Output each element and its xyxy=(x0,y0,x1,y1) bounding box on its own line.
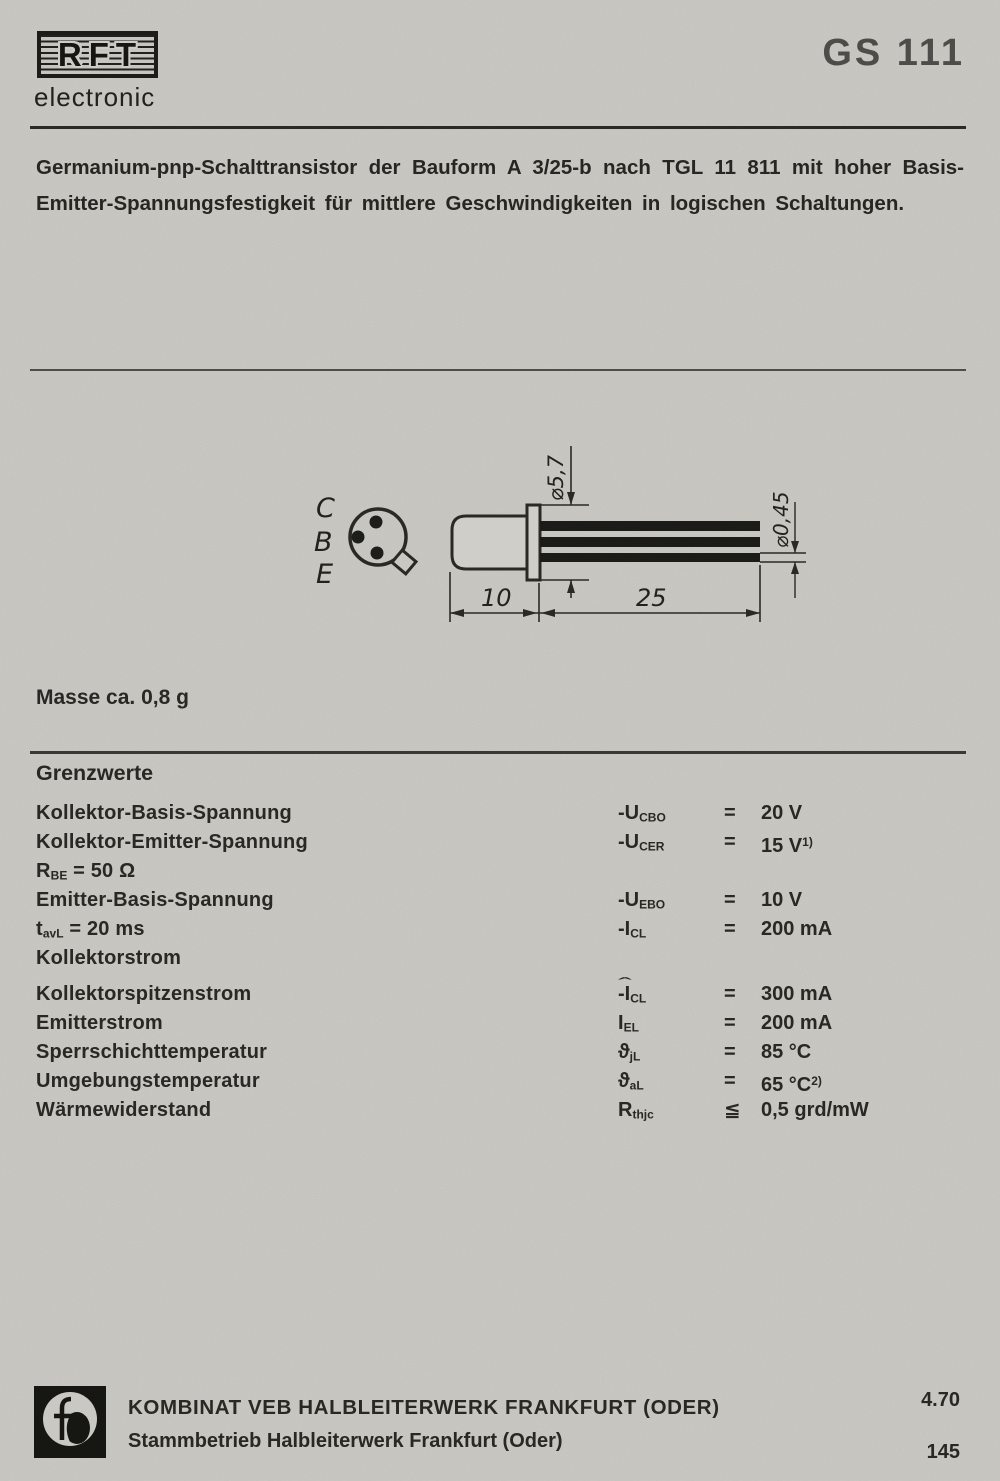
limit-relation: = xyxy=(724,1009,761,1038)
lead-bar-bottom2 xyxy=(549,553,760,562)
limit-name: RBE = 50 Ω xyxy=(36,857,618,886)
limit-relation xyxy=(724,944,761,973)
description-line-2: Emitter-Spannungsfestigkeit für mittlere… xyxy=(36,186,964,222)
transistor-flange xyxy=(527,505,540,580)
limit-relation xyxy=(724,857,761,886)
transistor-outline-drawing: C B E ⌀5,7 ⌀0,45 10 25 xyxy=(292,430,818,630)
limit-relation: = xyxy=(724,1067,761,1096)
limit-row: Kollektorspitzenstromˆ-ICL=300 mA xyxy=(36,980,966,1009)
limit-row: tavL = 20 ms-ICL=200 mA xyxy=(36,915,966,944)
limit-row: RBE = 50 Ω xyxy=(36,857,966,886)
limit-symbol: Rthjc xyxy=(618,1096,724,1125)
lead-bar-middle xyxy=(540,537,760,547)
pin-label-b: B xyxy=(314,527,333,558)
lead-bar-top xyxy=(540,521,760,531)
limit-relation: = xyxy=(724,1038,761,1067)
paper-texture xyxy=(0,0,1000,1481)
limit-value: 200 mA xyxy=(761,1009,966,1038)
limit-symbol: -ICL xyxy=(618,915,724,944)
limit-value: 85 °C xyxy=(761,1038,966,1067)
dim-lead-diameter-label: ⌀0,45 xyxy=(769,491,793,548)
pinout-index-tab xyxy=(392,550,416,574)
section-rule-limits xyxy=(30,751,966,754)
limit-value: 200 mA xyxy=(761,915,966,944)
limit-name: Emitterstrom xyxy=(36,1009,618,1038)
limit-value: 0,5 grd/mW xyxy=(761,1096,966,1125)
logo-electronic-label: electronic xyxy=(34,82,155,113)
limit-name: tavL = 20 ms xyxy=(36,915,618,944)
pin-dot-c xyxy=(370,516,383,529)
pin-dot-e xyxy=(371,547,384,560)
description-paragraph: Germanium-pnp-Schalttransistor der Baufo… xyxy=(36,150,964,222)
limit-symbol xyxy=(618,857,724,886)
description-line-1: Germanium-pnp-Schalttransistor der Baufo… xyxy=(36,150,964,186)
limit-name: Kollektor-Emitter-Spannung xyxy=(36,828,618,857)
limit-row: SperrschichttemperaturϑjL=85 °C xyxy=(36,1038,966,1067)
limit-name: Kollektorstrom xyxy=(36,944,618,973)
lead-bar-bottom xyxy=(540,553,549,562)
limit-symbol: -UCER xyxy=(618,828,724,857)
limit-relation: = xyxy=(724,980,761,1009)
limit-row: UmgebungstemperaturϑaL=65 °C2) xyxy=(36,1067,966,1096)
limit-row: EmitterstromIEL=200 mA xyxy=(36,1009,966,1038)
limit-name: Sperrschichttemperatur xyxy=(36,1038,618,1067)
limit-relation: = xyxy=(724,915,761,944)
limit-symbol: ϑaL xyxy=(618,1067,724,1096)
limit-name: Kollektorspitzenstrom xyxy=(36,980,618,1009)
limit-name: Umgebungstemperatur xyxy=(36,1067,618,1096)
hfo-logo-icon xyxy=(34,1386,106,1458)
limit-name: Wärmewiderstand xyxy=(36,1096,618,1125)
pin-dot-b xyxy=(352,531,365,544)
limit-value: 300 mA xyxy=(761,980,966,1009)
limit-relation: = xyxy=(724,886,761,915)
limit-value: 65 °C2) xyxy=(761,1067,966,1096)
limit-value: 20 V xyxy=(761,799,966,828)
limit-row: Kollektor-Basis-Spannung-UCBO=20 V xyxy=(36,799,966,828)
limit-row: Kollektor-Emitter-Spannung-UCER=15 V1) xyxy=(36,828,966,857)
limits-rows: Kollektor-Basis-Spannung-UCBO=20 VKollek… xyxy=(36,799,966,1125)
footer-company: KOMBINAT VEB HALBLEITERWERK FRANKFURT (O… xyxy=(128,1396,720,1453)
company-name-line1: KOMBINAT VEB HALBLEITERWERK FRANKFURT (O… xyxy=(128,1396,720,1420)
company-name-line2: Stammbetrieb Halbleiterwerk Frankfurt (O… xyxy=(128,1430,720,1453)
limit-row: WärmewiderstandRthjc≦0,5 grd/mW xyxy=(36,1096,966,1125)
footer-date-code: 4.70 xyxy=(870,1389,960,1412)
limit-row: Emitter-Basis-Spannung-UEBO=10 V xyxy=(36,886,966,915)
limit-value xyxy=(761,944,966,973)
dim-flange-diameter-label: ⌀5,7 xyxy=(544,454,568,501)
mass-note: Masse ca. 0,8 g xyxy=(36,686,189,710)
limit-symbol: ϑjL xyxy=(618,1038,724,1067)
limit-symbol: -UEBO xyxy=(618,886,724,915)
pin-label-e: E xyxy=(316,559,333,590)
part-number: GS 111 xyxy=(770,32,965,75)
limits-heading: Grenzwerte xyxy=(36,761,153,786)
limit-relation: = xyxy=(724,799,761,828)
dim-body-length-label: 10 xyxy=(481,584,512,612)
rft-logo-text: RFT xyxy=(52,38,143,71)
limit-value: 15 V1) xyxy=(761,828,966,857)
transistor-body-outline xyxy=(452,516,527,569)
pin-label-c: C xyxy=(316,493,335,524)
limit-value xyxy=(761,857,966,886)
dim-lead-length-label: 25 xyxy=(636,584,667,612)
limit-symbol: ˆ-ICL xyxy=(618,980,724,1009)
limit-symbol xyxy=(618,944,724,973)
header-rule xyxy=(30,126,966,129)
limit-name: Kollektor-Basis-Spannung xyxy=(36,799,618,828)
limit-relation: = xyxy=(724,828,761,857)
limit-row: Kollektorstrom xyxy=(36,944,966,973)
section-rule-top xyxy=(30,369,966,371)
footer-page-number: 145 xyxy=(870,1441,960,1464)
rft-logo: RFT xyxy=(37,31,158,78)
limit-name: Emitter-Basis-Spannung xyxy=(36,886,618,915)
limit-value: 10 V xyxy=(761,886,966,915)
datasheet-page: RFT electronic GS 111 Germanium-pnp-Scha… xyxy=(0,0,1000,1481)
limit-relation: ≦ xyxy=(724,1096,761,1125)
limit-symbol: IEL xyxy=(618,1009,724,1038)
limit-symbol: -UCBO xyxy=(618,799,724,828)
